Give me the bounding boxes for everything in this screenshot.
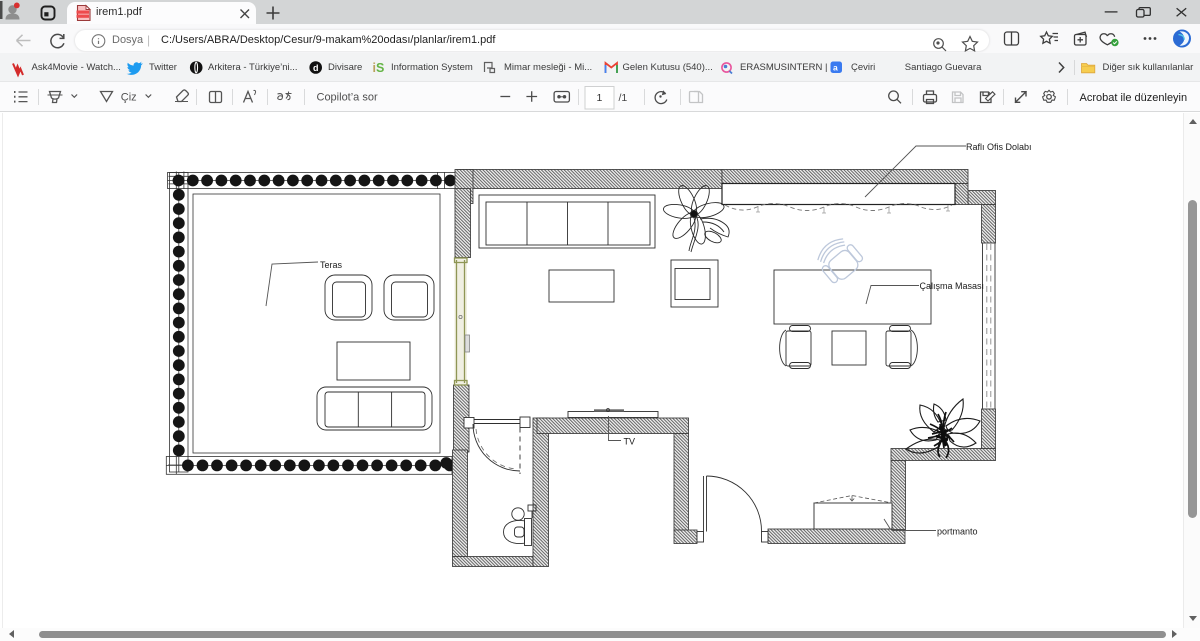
svg-text:/1: /1	[619, 92, 628, 104]
svg-text:1: 1	[597, 92, 603, 104]
svg-text:Copilot’a sor: Copilot’a sor	[317, 92, 378, 104]
svg-text:Çalışma Masası: Çalışma Masası	[920, 281, 985, 291]
svg-text:TV: TV	[624, 437, 636, 447]
svg-text:Raflı Ofis Dolabı: Raflı Ofis Dolabı	[966, 142, 1032, 152]
svg-text:a: a	[833, 63, 838, 73]
svg-text:Çiz: Çiz	[121, 92, 137, 104]
svg-text:d: d	[313, 63, 319, 73]
svg-text:Acrobat ile düzenleyin: Acrobat ile düzenleyin	[1080, 92, 1188, 104]
svg-text:portmanto: portmanto	[937, 527, 978, 537]
svg-text:Teras: Teras	[320, 260, 343, 270]
svg-text:S: S	[376, 61, 384, 75]
